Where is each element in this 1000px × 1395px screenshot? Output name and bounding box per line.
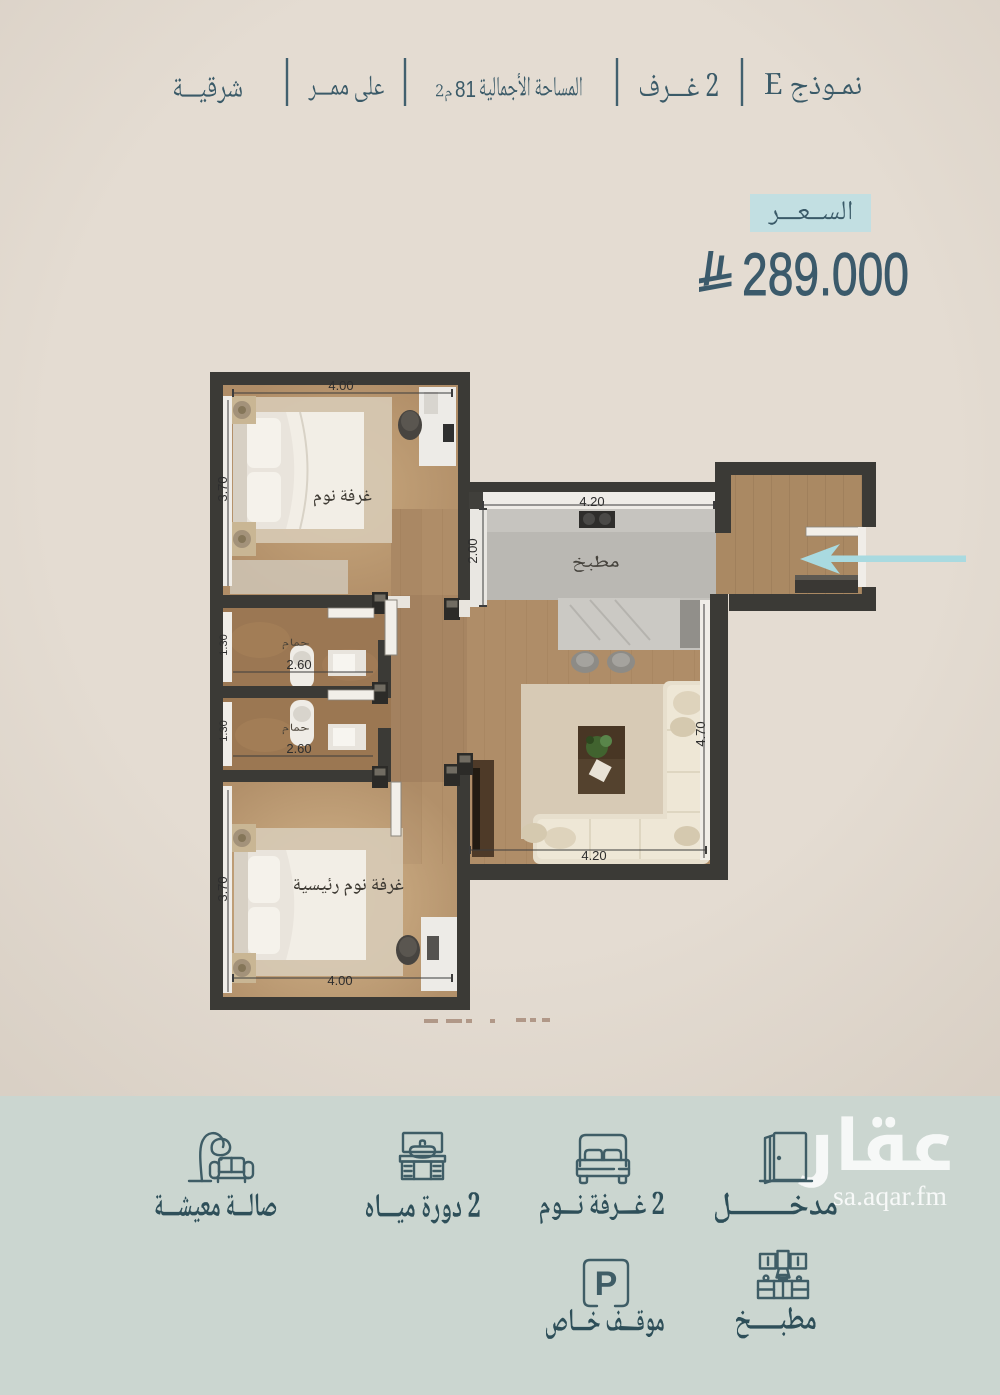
- svg-text:1.30: 1.30: [218, 720, 230, 741]
- svg-text:2.00: 2.00: [465, 538, 480, 563]
- svg-text:2.60: 2.60: [286, 741, 311, 756]
- svg-text:4.00: 4.00: [327, 973, 352, 988]
- svg-text:3.70: 3.70: [215, 876, 230, 901]
- svg-text:4.70: 4.70: [693, 721, 708, 746]
- svg-text:2.60: 2.60: [286, 657, 311, 672]
- svg-text:4.20: 4.20: [579, 494, 604, 509]
- svg-text:P: P: [595, 1265, 618, 1303]
- svg-text:3.70: 3.70: [215, 476, 230, 501]
- svg-text:289.000: 289.000: [742, 241, 909, 308]
- svg-text:1.30: 1.30: [218, 634, 230, 655]
- svg-text:81: 81: [455, 76, 476, 102]
- svg-text:4.20: 4.20: [581, 848, 606, 863]
- svg-text:4.00: 4.00: [328, 378, 353, 393]
- svg-text:sa.aqar.fm: sa.aqar.fm: [833, 1181, 947, 1211]
